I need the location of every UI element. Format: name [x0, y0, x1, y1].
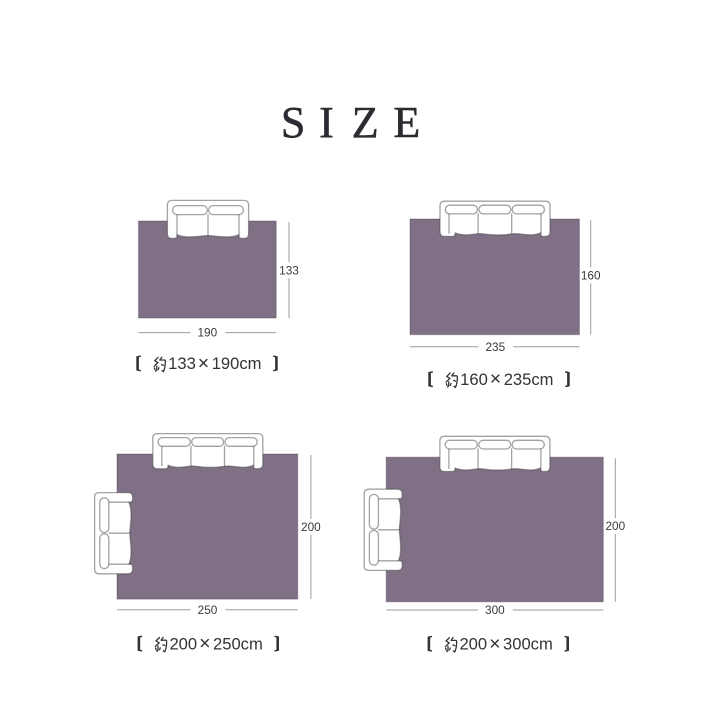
- svg-text:200: 200: [169, 634, 197, 653]
- svg-text:×: ×: [490, 368, 501, 390]
- svg-text:160: 160: [581, 269, 601, 283]
- svg-text:235: 235: [485, 340, 505, 354]
- svg-text:300: 300: [485, 603, 505, 617]
- svg-text:×: ×: [199, 633, 210, 655]
- svg-text:E: E: [393, 98, 420, 147]
- svg-text:190: 190: [197, 326, 217, 340]
- svg-text:300cm: 300cm: [503, 635, 553, 654]
- svg-text:250cm: 250cm: [213, 634, 263, 653]
- svg-text:250: 250: [198, 603, 218, 617]
- svg-text:×: ×: [198, 352, 209, 374]
- svg-text:Z: Z: [352, 98, 379, 147]
- svg-text:235cm: 235cm: [504, 370, 554, 389]
- svg-text:160: 160: [460, 370, 488, 389]
- svg-text:190cm: 190cm: [212, 354, 262, 373]
- svg-text:S: S: [281, 98, 305, 147]
- svg-text:200: 200: [605, 519, 625, 533]
- svg-text:133: 133: [279, 263, 299, 277]
- svg-text:133: 133: [168, 354, 196, 373]
- svg-text:×: ×: [489, 633, 500, 655]
- svg-text:200: 200: [459, 635, 487, 654]
- svg-text:200: 200: [301, 520, 321, 534]
- svg-text:I: I: [319, 98, 334, 147]
